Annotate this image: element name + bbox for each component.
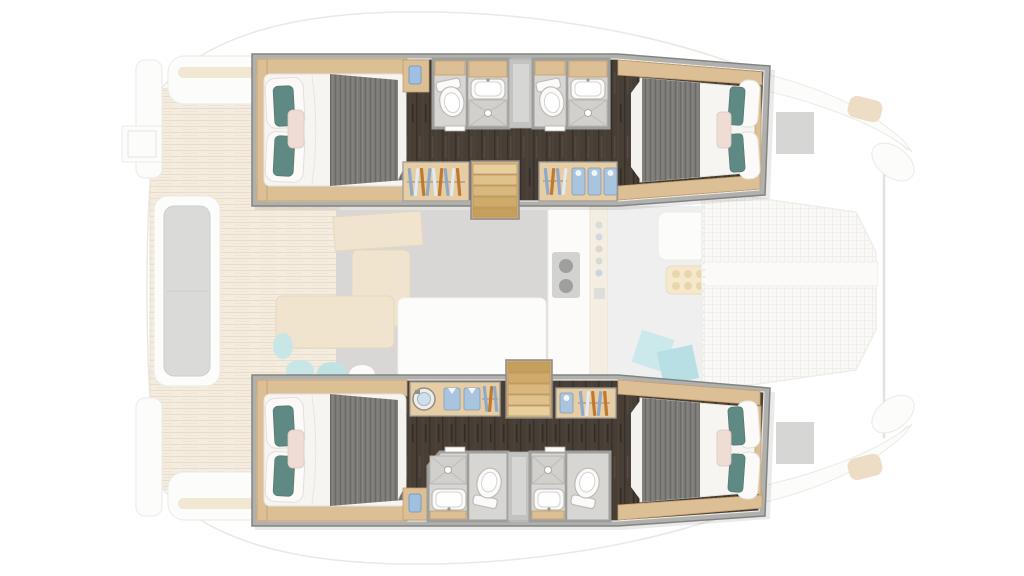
deck-hatch-tan-top bbox=[846, 94, 884, 124]
cabin-shelf bbox=[257, 59, 407, 75]
stair-tread bbox=[473, 208, 517, 217]
burner-icon bbox=[559, 279, 573, 293]
table-dot bbox=[672, 270, 680, 278]
appliance-icon bbox=[596, 258, 603, 265]
appliance-icon bbox=[594, 288, 605, 299]
folded-clothes-top bbox=[608, 170, 614, 176]
stair-tread bbox=[473, 197, 517, 207]
vase-icon bbox=[409, 66, 421, 84]
shower-drain bbox=[445, 467, 452, 474]
shower-drain bbox=[585, 110, 592, 117]
lumbar-pillow bbox=[288, 110, 304, 148]
bath-cabinet bbox=[469, 61, 507, 77]
floorplan-svg: Top-down deck plan of a sailing catamara… bbox=[0, 0, 1024, 576]
port-hull bbox=[252, 54, 775, 219]
stair-tread bbox=[508, 406, 550, 416]
swim-platform-starboard bbox=[136, 398, 162, 516]
bed-foot bbox=[631, 398, 642, 502]
appliance-icon bbox=[596, 246, 603, 253]
chart-table bbox=[333, 211, 423, 251]
stair-tread bbox=[473, 186, 517, 196]
faucet-icon bbox=[447, 507, 450, 510]
bath-cabinet bbox=[535, 61, 565, 75]
bath-cabinet bbox=[569, 61, 607, 77]
lumbar-pillow bbox=[717, 112, 731, 148]
bath-cabinet bbox=[435, 61, 465, 75]
deck-hatch-tan-bottom bbox=[846, 452, 884, 482]
bed-blanket bbox=[330, 394, 404, 506]
bed-foot bbox=[631, 78, 642, 182]
deck-hatch-gray-bottom bbox=[776, 422, 814, 464]
bathroom-door bbox=[545, 447, 565, 452]
forward-bench bbox=[658, 212, 706, 260]
vase-icon bbox=[409, 494, 421, 512]
technical-panel bbox=[513, 64, 529, 122]
stair-tread bbox=[508, 362, 550, 372]
washing-machine-icon bbox=[413, 388, 435, 410]
bath-cabinet bbox=[532, 511, 564, 519]
trampoline-crossbeam bbox=[702, 262, 878, 286]
cabin-shelf bbox=[257, 505, 407, 521]
port-bow-tip bbox=[865, 135, 921, 188]
table-dot bbox=[684, 270, 692, 278]
faucet-icon bbox=[586, 78, 589, 81]
lumbar-pillow bbox=[288, 430, 304, 468]
stair-tread bbox=[473, 175, 517, 185]
starboard-aft-cabin bbox=[257, 380, 429, 521]
starboard-hull bbox=[252, 360, 775, 530]
companionway-stairs bbox=[471, 161, 519, 219]
appliance-icon bbox=[596, 270, 603, 277]
bow-trampoline bbox=[702, 190, 876, 392]
port-bathrooms bbox=[433, 59, 609, 131]
shower-drain bbox=[485, 110, 492, 117]
folded-clothes-top bbox=[576, 170, 582, 176]
sink-basin bbox=[538, 492, 560, 507]
bed-blanket bbox=[330, 74, 404, 186]
cushion bbox=[273, 333, 293, 359]
lumbar-pillow bbox=[717, 430, 731, 466]
appliance-icon bbox=[596, 222, 603, 229]
stair-tread bbox=[508, 395, 550, 405]
stair-tread bbox=[508, 384, 550, 394]
sink-basin bbox=[475, 82, 501, 96]
bathroom-door bbox=[545, 126, 565, 131]
catamaran-floorplan: Top-down deck plan of a sailing catamara… bbox=[0, 0, 1024, 576]
bed-blanket bbox=[642, 398, 700, 502]
folded-clothes-top bbox=[564, 395, 570, 401]
bathroom-door bbox=[445, 447, 465, 452]
faucet-icon bbox=[547, 507, 550, 510]
starboard-bow-tip bbox=[865, 387, 921, 440]
table-dot bbox=[684, 282, 692, 290]
burner-icon bbox=[559, 259, 573, 273]
dinette-table bbox=[276, 296, 394, 348]
stair-tread bbox=[473, 164, 517, 174]
table-dot bbox=[672, 282, 680, 290]
bath-cabinet bbox=[430, 511, 466, 519]
appliance-icon bbox=[596, 234, 603, 241]
sink-basin bbox=[436, 492, 462, 507]
faucet-icon bbox=[486, 78, 489, 81]
bed-blanket bbox=[642, 78, 700, 182]
deck-hatch-gray-top bbox=[776, 112, 814, 154]
cabin-shelf bbox=[257, 185, 407, 201]
stair-tread bbox=[508, 373, 550, 383]
companionway-stairs bbox=[506, 360, 552, 418]
starboard-bathrooms bbox=[428, 447, 610, 521]
bathroom-door bbox=[445, 126, 465, 131]
sink-basin bbox=[575, 82, 601, 96]
folded-clothes-top bbox=[592, 170, 598, 176]
technical-panel bbox=[512, 457, 526, 515]
shower-drain bbox=[545, 467, 552, 474]
